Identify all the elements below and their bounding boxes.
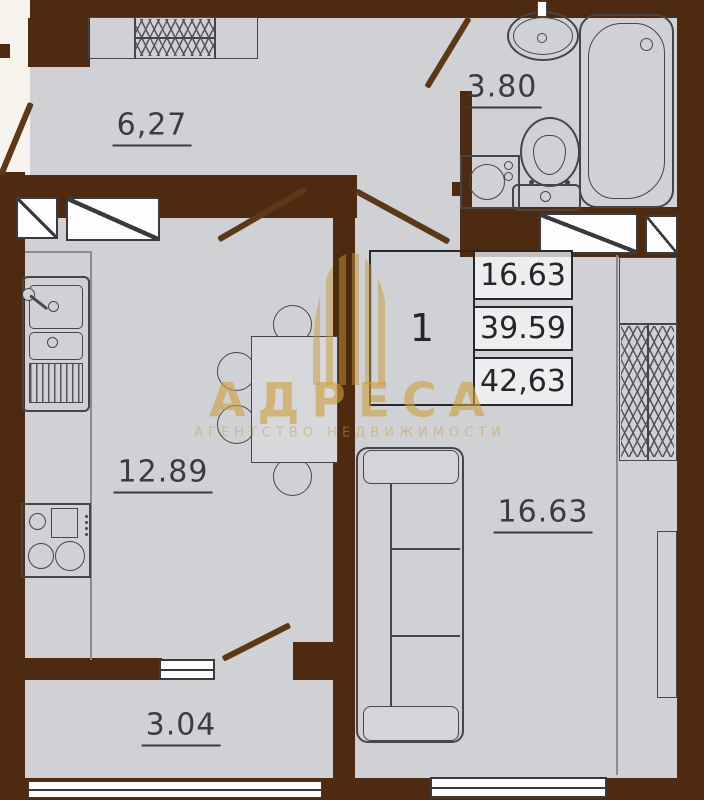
stove-burner	[28, 543, 54, 569]
vent-diagonal	[18, 199, 56, 237]
wall-left	[0, 172, 25, 800]
shelf-unit	[657, 531, 677, 698]
stove-knob	[85, 515, 88, 518]
stove-knob	[85, 521, 88, 524]
entry-wardrobe	[88, 17, 258, 59]
bath-sink-tap	[537, 1, 547, 17]
kitchen-counter-edge	[25, 251, 90, 253]
watermark-subtitle: АГЕНТСТВО НЕДВИЖИМОСТИ	[194, 426, 506, 441]
stove-knob	[85, 533, 88, 536]
living-area-cell: 16.63	[473, 250, 573, 300]
living-room-window	[430, 777, 607, 798]
kitchen-balcony-window	[159, 659, 215, 680]
window-frame-line	[161, 669, 213, 671]
wardrobe-rail-line	[134, 37, 215, 39]
bathtub-inner	[588, 23, 665, 199]
sofa-armrest	[363, 450, 459, 484]
room-label-balcony: 3.04	[142, 708, 221, 747]
closet-wardrobe	[619, 323, 677, 461]
sofa-armrest	[363, 706, 459, 741]
kitchen-sink-drain	[47, 337, 58, 348]
sofa-backrest-line	[390, 483, 392, 707]
entrance-door-stub	[0, 44, 10, 58]
sofa-cushion-divider	[390, 635, 460, 637]
closet-zone-line	[616, 255, 618, 775]
vent-shaft	[16, 197, 58, 239]
vent-shaft	[66, 197, 160, 241]
vent-diagonal	[68, 199, 158, 239]
kitchen-drainboard	[29, 363, 83, 403]
vent-shaft	[645, 215, 678, 254]
vent-shaft	[539, 213, 638, 254]
kitchen-sink-drain	[48, 301, 59, 312]
bath-sink-drain	[537, 33, 547, 43]
vent-diagonal	[647, 217, 676, 252]
stove-oven	[51, 508, 78, 538]
window-frame-line	[432, 787, 605, 789]
floor-plan: 6,27 3.80 12.89 16.63 3.04 1 16.63 39.59…	[0, 0, 704, 800]
outside-area	[0, 0, 30, 177]
window-frame-line	[29, 789, 321, 791]
room-label-kitchen: 12.89	[114, 455, 213, 494]
room-label-hallway: 6,27	[113, 108, 192, 147]
area-without-balcony-cell: 39.59	[473, 306, 573, 351]
washing-machine-knob	[504, 172, 513, 181]
wall-right	[677, 0, 704, 800]
washing-machine-drum	[469, 164, 505, 200]
stove-knob	[85, 527, 88, 530]
wall-balcony-chunk	[293, 642, 352, 680]
room-label-living: 16.63	[494, 495, 593, 534]
kitchen-counter-edge	[90, 251, 92, 660]
toilet-bolt	[565, 180, 570, 185]
closet-cabinet	[619, 257, 677, 325]
wall-hall-center-chunk	[303, 175, 357, 218]
balcony-glazing	[28, 781, 322, 798]
room-label-bathroom: 3.80	[463, 70, 542, 109]
stove-burner	[29, 513, 46, 530]
bathtub-drain	[640, 38, 653, 51]
wall-chunk-top-left	[28, 18, 90, 67]
wardrobe-divider	[647, 324, 649, 460]
sofa-cushion-divider	[390, 548, 460, 550]
watermark-brand: АДРЕСА	[209, 374, 497, 429]
toilet-bolt	[529, 180, 534, 185]
toilet-flush-button	[540, 191, 551, 202]
sofa	[356, 447, 464, 743]
washing-machine-knob	[504, 161, 513, 170]
vent-diagonal	[541, 215, 636, 252]
stove-burner	[55, 541, 85, 571]
wall-kitchen-balcony	[0, 658, 162, 680]
